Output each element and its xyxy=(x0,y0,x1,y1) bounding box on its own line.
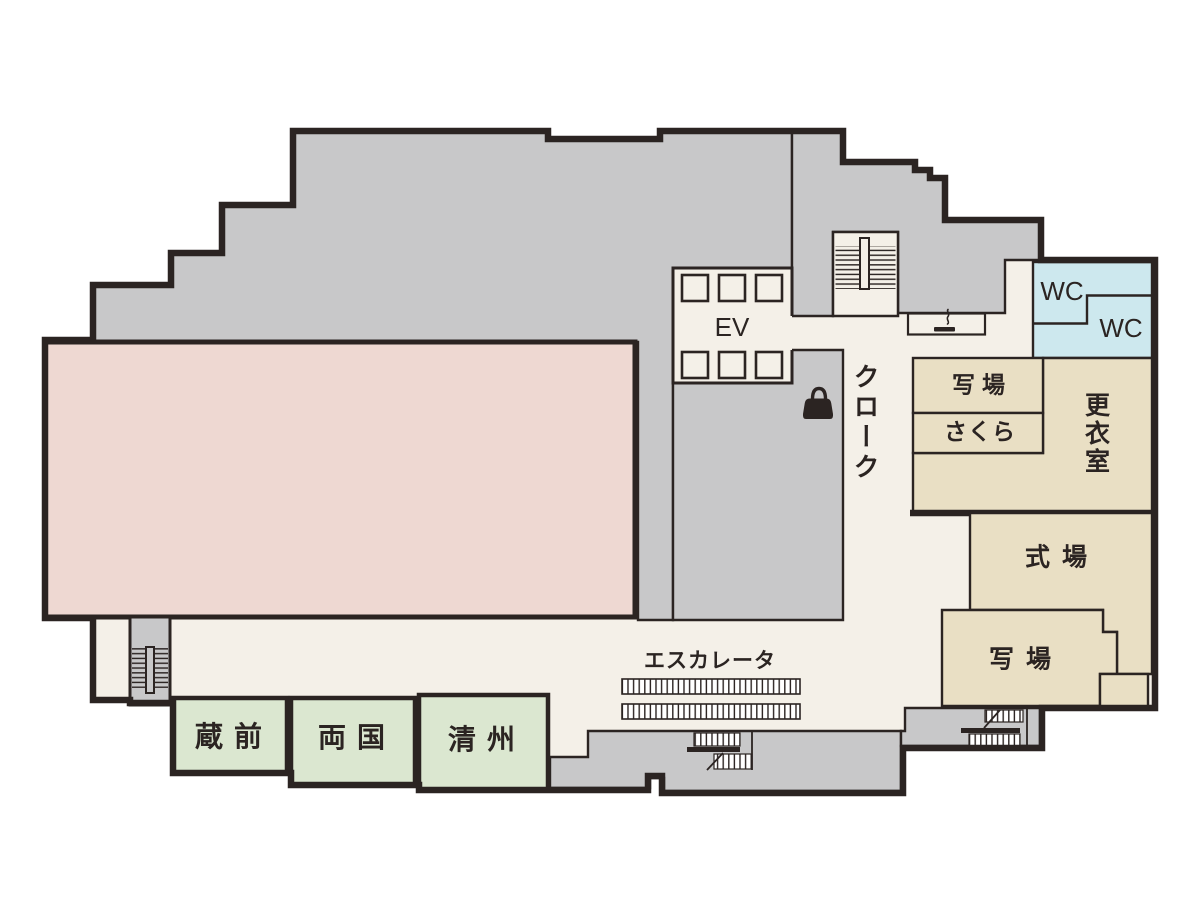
room-label-shajou-upper: 写場 xyxy=(952,374,1012,397)
floor-plan-canvas xyxy=(0,0,1200,924)
gray-zone-center xyxy=(673,350,843,620)
cloak-label: クローク xyxy=(852,363,878,483)
room-label-wc-lower: WC xyxy=(1099,315,1142,341)
room-label-sakura: さくら xyxy=(944,421,1016,444)
escalator-strip xyxy=(622,679,800,694)
room-label-changing: 更衣室 xyxy=(1083,392,1108,476)
escalator-label: エスカレータ xyxy=(644,651,776,672)
floor-plan: EV クローク WC WC 写場 さくら 更衣室 式場 写場 エスカレータ 蔵前… xyxy=(0,0,1200,924)
room-corner-small xyxy=(1100,674,1148,707)
stairs-top-divider xyxy=(860,238,869,289)
elevator-label: EV xyxy=(715,314,750,340)
room-label-ceremony: 式場 xyxy=(1025,546,1099,571)
room-label-shajou-lower: 写場 xyxy=(989,648,1063,673)
stairs-left-divider xyxy=(146,647,154,693)
room-label-wc-upper: WC xyxy=(1040,278,1083,304)
room-label-ryogoku: 両国 xyxy=(318,724,396,752)
room-label-kuramae: 蔵前 xyxy=(195,723,273,751)
room-label-kiyosu: 清州 xyxy=(448,726,526,754)
room-banquet-hall xyxy=(45,342,635,617)
escalator-strip xyxy=(622,704,800,719)
